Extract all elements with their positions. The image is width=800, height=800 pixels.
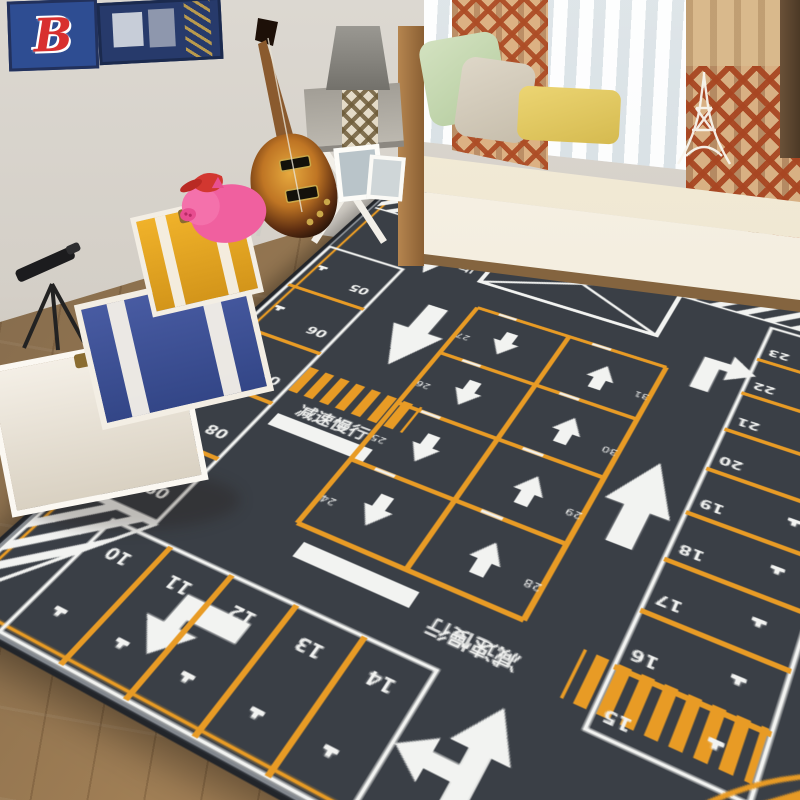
poster-art-block [112,12,144,48]
eiffel-tower-figurine [662,72,746,172]
curtain-dark-edge [780,0,800,158]
trunk-strap [107,300,151,417]
poster-wheat-art [183,0,212,62]
room-photo: B [0,0,800,800]
red-sox-poster: B [7,0,99,72]
pink-pig-toy [176,156,276,256]
yellow-pillow [517,85,622,144]
poster-art-block [148,8,176,47]
guitar-neck [258,40,294,144]
navy-art-poster [96,0,223,65]
picture-frame [366,155,406,202]
poster-letter: B [33,7,74,62]
